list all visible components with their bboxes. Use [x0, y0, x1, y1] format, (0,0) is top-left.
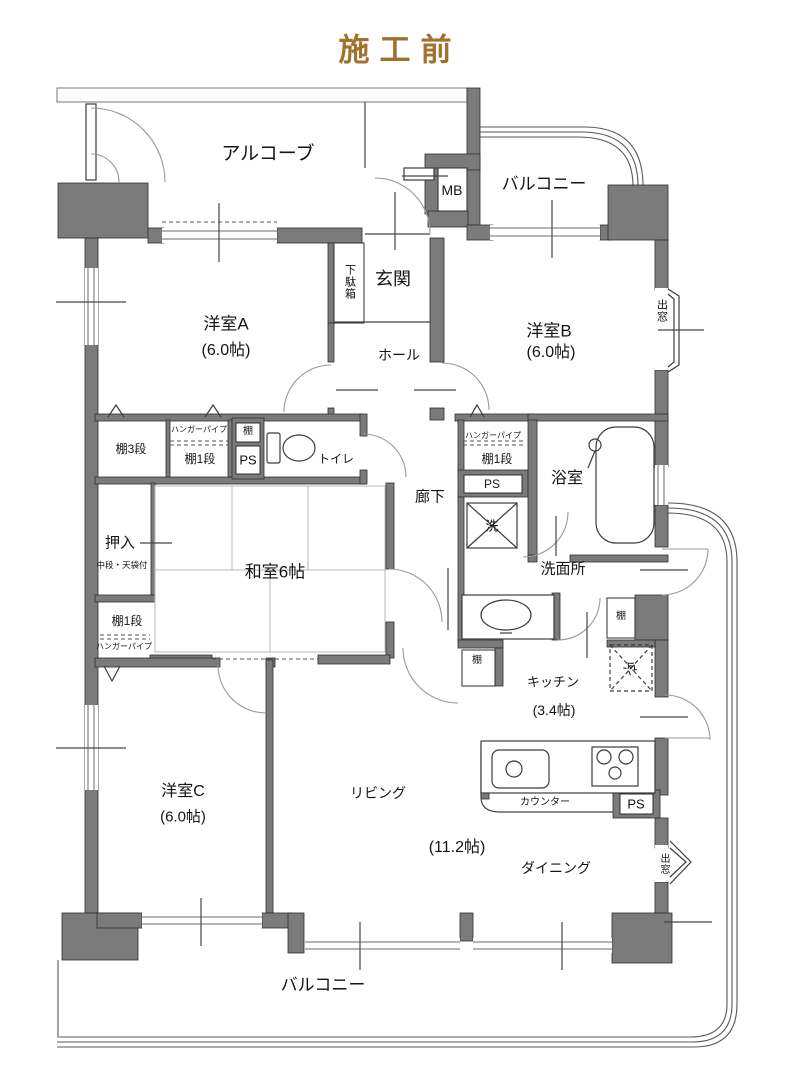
label-bay-window-dining: 出窓 — [658, 853, 668, 875]
label-bay-window-b: 出窓 — [656, 299, 667, 323]
room-label-balcony-bottom: バルコニー — [281, 977, 366, 994]
room-size-room-c: (6.0帖) — [160, 810, 206, 825]
label-ps-a: PS — [239, 454, 256, 467]
label-hanger-pipe-a: ハンガーパイプ — [171, 426, 227, 434]
room-label-corridor: 廊下 — [415, 490, 445, 505]
room-label-toilet: トイレ — [318, 453, 354, 465]
room-label-kitchen: キッチン — [527, 676, 579, 689]
label-shelf-1-a: 棚1段 — [185, 453, 216, 465]
room-label-bathroom: 浴室 — [551, 471, 583, 487]
label-shelf-kitchen: 棚 — [472, 656, 482, 666]
label-hanger-pipe-c: ハンガーパイプ — [96, 643, 152, 651]
room-label-dining: ダイニング — [521, 861, 591, 875]
room-label-hall: ホール — [378, 348, 420, 362]
front-door-leaf — [404, 168, 434, 180]
balcony-railing — [57, 127, 737, 1047]
room-size-kitchen: (3.4帖) — [533, 703, 576, 717]
room-label-alcove: アルコーブ — [221, 145, 314, 164]
room-label-living: リビング — [350, 786, 406, 800]
label-closet-note: 中段・天袋付 — [96, 561, 147, 570]
label-shelf-1-b: 棚1段 — [482, 453, 513, 465]
bay-window-dining-frame — [670, 841, 691, 884]
label-shoe-box: 下駄箱 — [344, 264, 355, 300]
floor-plan-page: 施工前 — [0, 0, 800, 1085]
room-label-washroom: 洗面所 — [540, 562, 585, 577]
room-size-living-dining: (11.2帖) — [429, 840, 486, 856]
room-size-room-b: (6.0帖) — [527, 345, 576, 361]
room-label-room-c: 洋室C — [161, 784, 205, 800]
room-label-entrance: 玄関 — [375, 270, 411, 288]
label-shelf-3: 棚3段 — [116, 443, 147, 455]
label-ps-c: PS — [627, 798, 644, 811]
room-label-japanese-room: 和室6帖 — [245, 564, 305, 581]
toilet-icon — [267, 433, 315, 463]
label-washer: 洗 — [485, 520, 498, 533]
label-closet: 押入 — [105, 536, 135, 551]
room-label-room-b: 洋室B — [526, 323, 571, 340]
room-label-balcony-top: バルコニー — [502, 176, 587, 193]
label-mb: MB — [442, 183, 463, 197]
label-counter: カウンター — [520, 798, 570, 808]
windows — [85, 222, 691, 953]
room-size-room-a: (6.0帖) — [202, 343, 251, 359]
label-shelf-a: 棚 — [243, 427, 253, 437]
washbasin-icon — [462, 595, 554, 639]
room-label-room-a: 洋室A — [203, 316, 248, 333]
label-hanger-pipe-b: ハンガーパイプ — [465, 432, 521, 440]
label-shelf-washroom: 棚 — [616, 612, 626, 622]
walls — [58, 88, 672, 963]
label-shelf-1-c: 棚1段 — [112, 615, 143, 627]
label-ps-b: PS — [484, 478, 500, 490]
alcove-door-leaf — [86, 104, 96, 180]
bathtub-icon — [588, 427, 654, 543]
kitchen-counter — [481, 741, 655, 793]
upper-structure-wall — [57, 88, 467, 102]
